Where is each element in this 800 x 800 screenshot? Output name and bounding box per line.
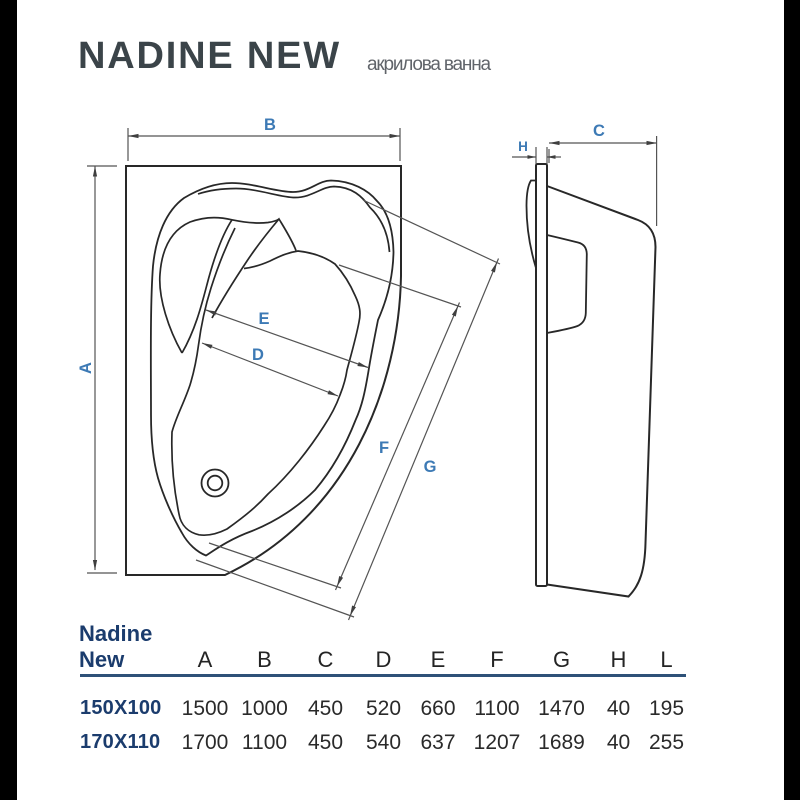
svg-text:G: G (424, 458, 437, 476)
svg-text:C: C (593, 122, 605, 140)
svg-text:E: E (258, 310, 269, 328)
svg-text:H: H (518, 139, 528, 154)
svg-text:A: A (77, 362, 95, 374)
svg-text:B: B (264, 116, 276, 134)
svg-text:D: D (252, 346, 264, 364)
svg-text:F: F (379, 439, 389, 457)
